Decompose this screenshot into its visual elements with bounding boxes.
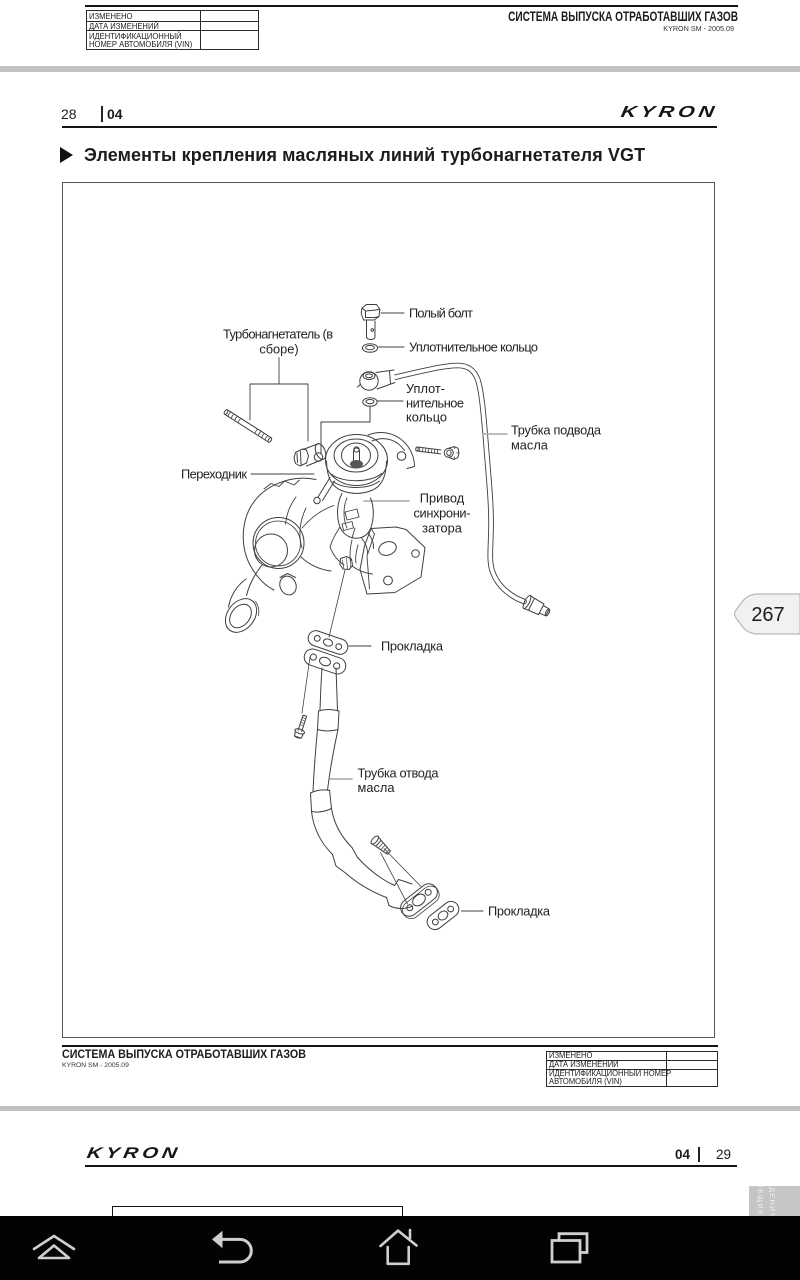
svg-text:нительное: нительное	[406, 396, 464, 411]
svg-text:масла: масла	[511, 438, 549, 453]
svg-text:Уплот-: Уплот-	[406, 381, 445, 396]
svg-text:Уплотнительное кольцо: Уплотнительное кольцо	[409, 340, 538, 355]
svg-text:Трубка отвода: Трубка отвода	[358, 766, 440, 781]
svg-text:синхрони-: синхрони-	[414, 506, 471, 521]
svg-text:масла: масла	[358, 780, 396, 795]
svg-text:затора: затора	[422, 521, 463, 536]
svg-text:Прокладка: Прокладка	[381, 639, 444, 654]
svg-text:Полый болт: Полый болт	[409, 306, 473, 321]
svg-text:Привод: Привод	[420, 491, 465, 506]
svg-text:Трубка подвода: Трубка подвода	[511, 423, 602, 438]
svg-text:Турбонагнетатель (в: Турбонагнетатель (в	[223, 327, 333, 342]
svg-text:267: 267	[751, 604, 784, 626]
svg-text:сборе): сборе)	[259, 342, 298, 357]
svg-text:кольцо: кольцо	[406, 410, 447, 425]
svg-text:Прокладка: Прокладка	[488, 904, 551, 919]
svg-text:Переходник: Переходник	[181, 467, 247, 482]
